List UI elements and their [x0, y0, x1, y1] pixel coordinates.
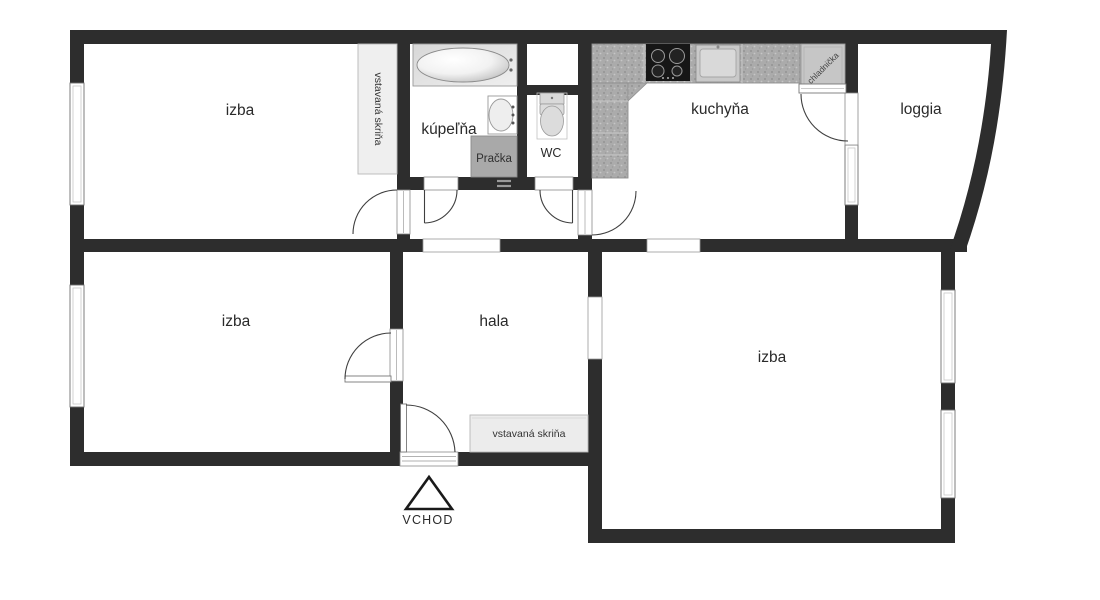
wall-bottom-left	[70, 452, 602, 466]
label-izba-bottom-right: izba	[758, 349, 787, 366]
label-wc: WC	[541, 146, 562, 160]
wardrobe-top: vstavaná skriňa	[358, 44, 397, 174]
counter-corner-unit	[628, 83, 647, 101]
label-kupelna: kúpeľňa	[421, 121, 477, 138]
floor-plan-drawing: vstavaná skriňa Pračka	[0, 0, 1100, 600]
entrance-marker: VCHOD	[402, 477, 453, 527]
floor-plan: vstavaná skriňa Pračka	[0, 0, 1100, 600]
kitchen-sink	[696, 45, 740, 82]
openings	[423, 239, 700, 359]
entrance-label: VCHOD	[402, 513, 453, 527]
door-entrance	[400, 404, 458, 466]
counter-left-run	[592, 83, 628, 178]
bathroom-sink	[488, 96, 517, 134]
door-loggia	[799, 84, 858, 145]
opening-corridor-izbaBR	[647, 239, 700, 252]
door-izba-bottom-left	[345, 329, 403, 382]
door-kitchen	[578, 190, 636, 235]
label-kuchyna: kuchyňa	[691, 101, 749, 118]
label-izba-bottom-left: izba	[222, 313, 251, 330]
wall-loggia-slanted	[949, 30, 1007, 252]
label-izba-top-left: izba	[226, 102, 255, 119]
tub-faucet-dot	[509, 58, 512, 61]
door-bathroom	[424, 177, 458, 223]
label-hala: hala	[479, 313, 509, 330]
label-loggia: loggia	[900, 101, 942, 118]
window-izbaBR-right-lower	[941, 410, 955, 498]
wall-izbaBR-left	[588, 252, 602, 543]
washing-machine-label: Pračka	[476, 153, 512, 165]
wall-izbaBR-bottom	[588, 529, 955, 543]
window-izbaBL-left	[70, 285, 84, 407]
window-loggia-kitchen	[845, 145, 858, 205]
door-izba-top-left	[353, 190, 410, 234]
entrance-triangle-icon	[406, 477, 452, 509]
bathtub	[413, 44, 517, 86]
wall-bath-wc	[517, 30, 527, 177]
wardrobe-top-label: vstavaná skriňa	[372, 73, 384, 146]
tub-faucet-dot	[509, 68, 512, 71]
wall-middle-horizontal	[70, 239, 967, 252]
door-wc	[535, 177, 573, 223]
toilet	[537, 93, 567, 139]
window-izbaTL-left	[70, 83, 84, 205]
wardrobe-hall-label: vstavaná skriňa	[493, 428, 566, 440]
cooktop	[646, 44, 690, 81]
opening-corridor-hala	[423, 239, 500, 252]
window-izbaBR-right-upper	[941, 290, 955, 383]
wardrobe-hall: vstavaná skriňa	[470, 415, 588, 452]
walls	[70, 30, 1007, 543]
opening-hala-izbaBR	[588, 297, 602, 359]
